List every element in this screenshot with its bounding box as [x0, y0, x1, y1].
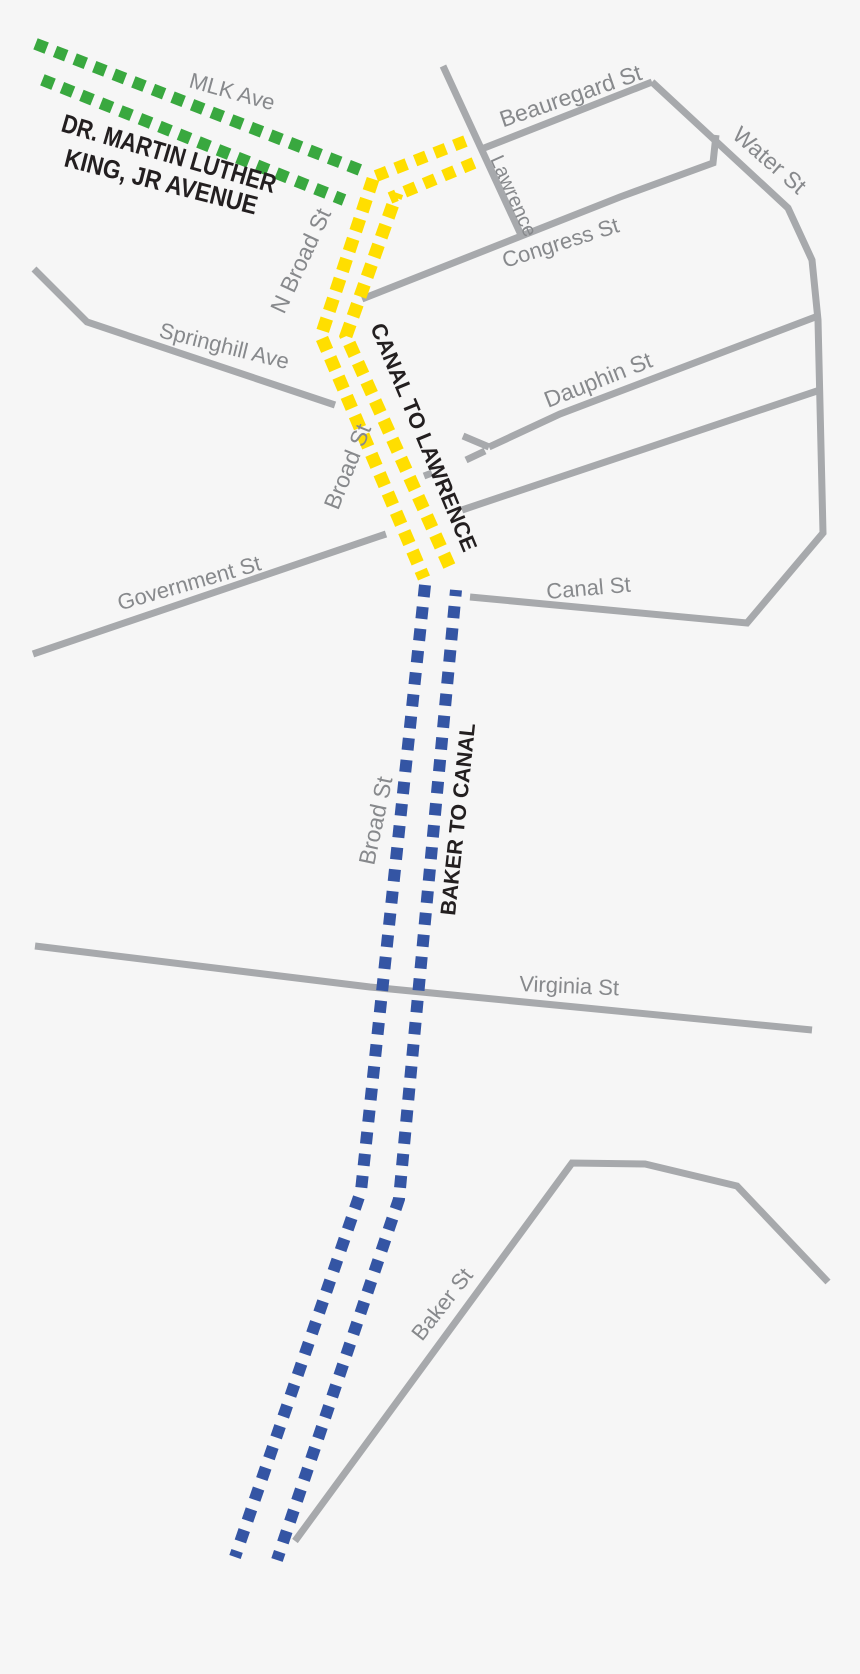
svg-text:Virginia St: Virginia St — [519, 971, 620, 1000]
